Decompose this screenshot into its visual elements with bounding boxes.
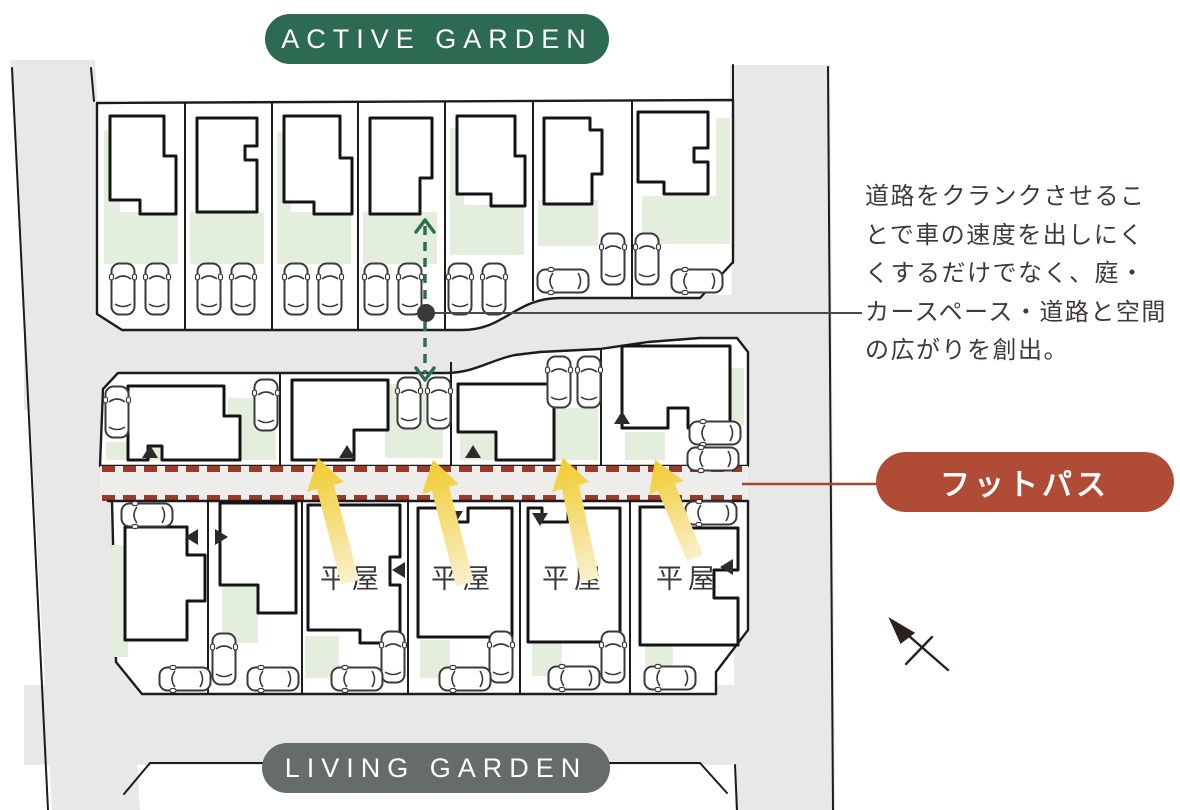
- annotation-line: とで車の速度を出しにく: [865, 217, 1177, 256]
- crank-road-annotation: 道路をクランクさせるこ とで車の速度を出しにく くするだけでなく、庭・ カースペ…: [865, 178, 1177, 371]
- active-garden-label: ACTIVE GARDEN: [281, 24, 593, 55]
- house-footprint: [544, 118, 602, 204]
- annotation-line: の広がりを創出。: [865, 332, 1177, 371]
- footpath-strip: [100, 466, 748, 501]
- annotation-leader-dot: [417, 304, 435, 322]
- north-arrow-icon: [891, 620, 948, 670]
- footpath-label: フットパス: [940, 460, 1110, 504]
- footpath-badge: フットパス: [876, 452, 1174, 512]
- site-plan-svg: 平屋 平屋 平屋 平屋: [0, 0, 1180, 810]
- annotation-line: カースペース・道路と空間: [865, 294, 1177, 333]
- bottom-block: 平屋 平屋 平屋 平屋: [108, 501, 748, 694]
- house-footprint: [128, 386, 240, 460]
- site-plan-page: 平屋 平屋 平屋 平屋: [0, 0, 1180, 810]
- annotation-line: くするだけでなく、庭・: [865, 255, 1177, 294]
- hiraya-label: 平屋: [656, 564, 720, 595]
- house-footprint: [457, 116, 525, 206]
- house-footprint: [197, 118, 257, 212]
- active-garden-badge: ACTIVE GARDEN: [265, 14, 609, 64]
- annotation-line: 道路をクランクさせるこ: [865, 178, 1177, 217]
- living-garden-label: LIVING GARDEN: [285, 753, 588, 784]
- living-garden-badge: LIVING GARDEN: [262, 743, 610, 793]
